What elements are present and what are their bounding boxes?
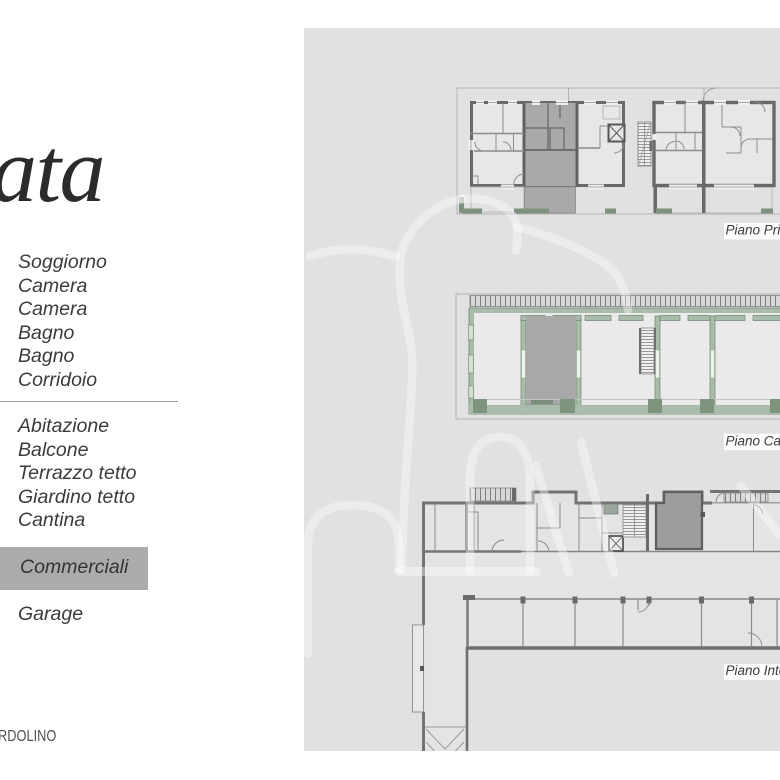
svg-text:Piano Interrato: Piano Interrato [726,663,780,678]
svg-text:Piano Primo: Piano Primo [726,223,780,238]
svg-text:Piano Cantine: Piano Cantine [726,434,780,449]
